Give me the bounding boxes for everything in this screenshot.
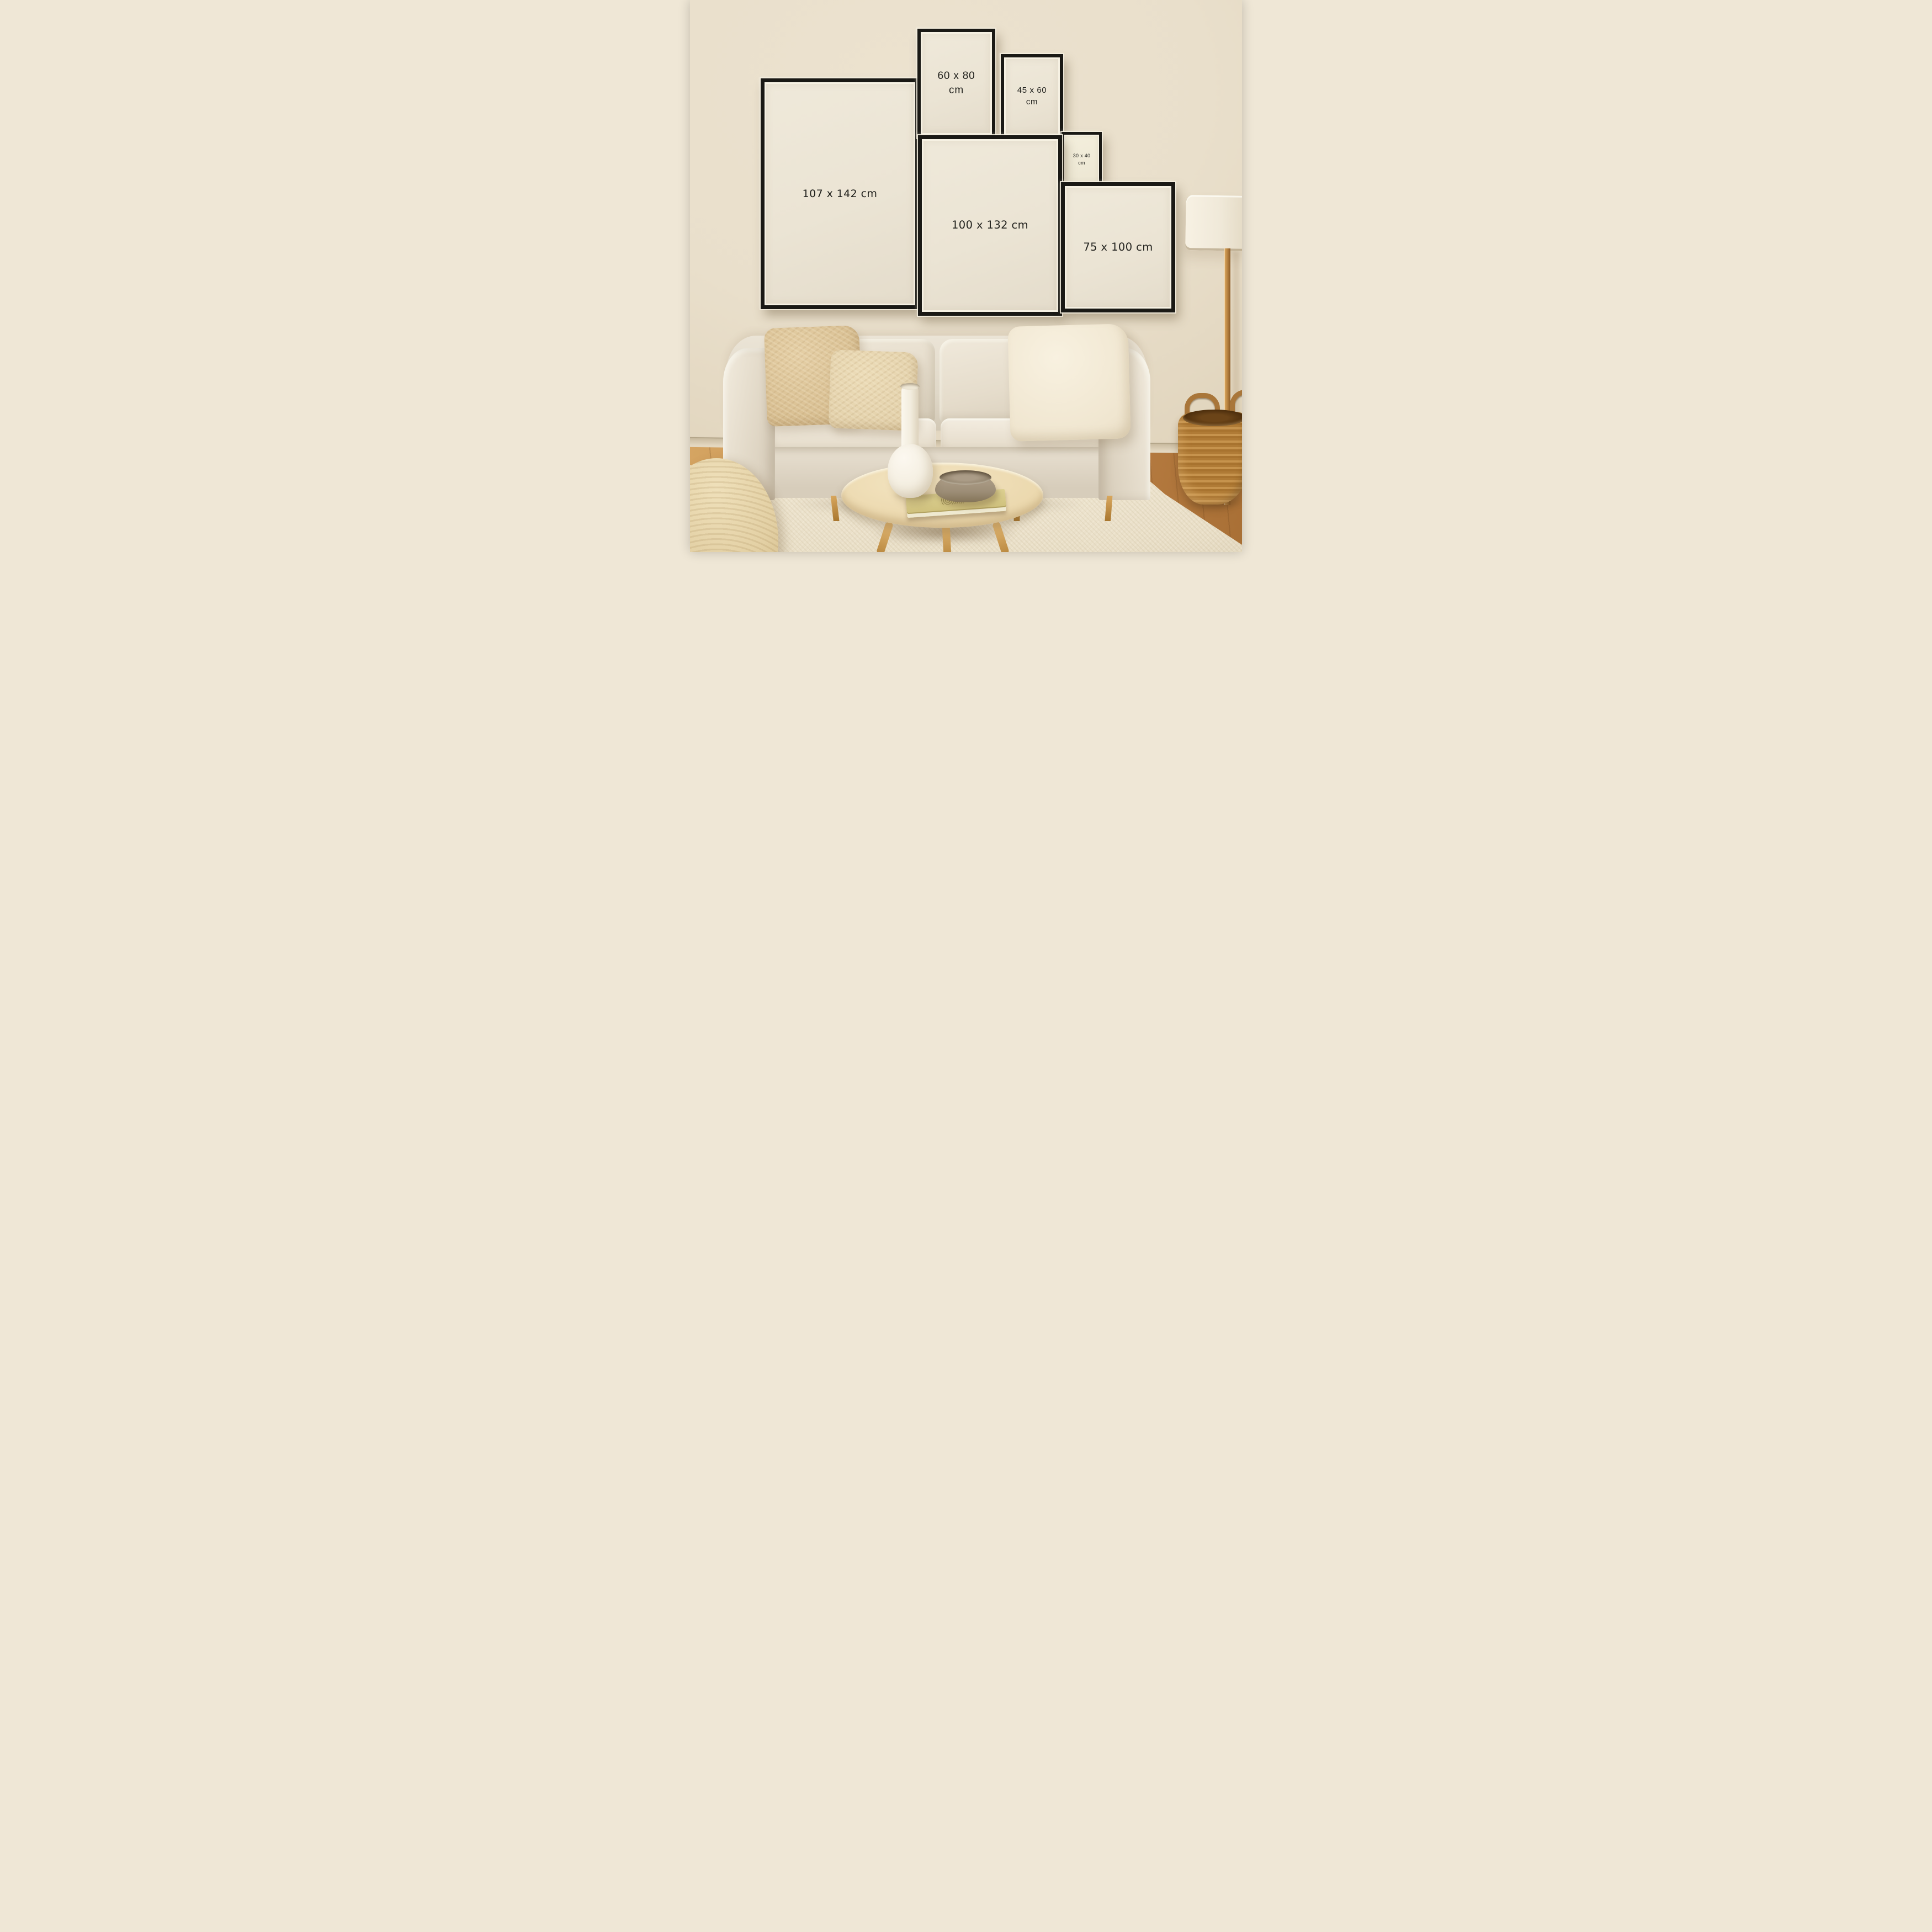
throw-pillow-cream bbox=[1007, 323, 1130, 442]
frame-size-label: 107 x 142 cm bbox=[803, 187, 878, 201]
frame-paper: 45 x 60cm bbox=[1004, 57, 1060, 135]
vase-lip bbox=[900, 383, 920, 390]
frame-size-label: 30 x 40cm bbox=[1073, 152, 1091, 166]
frame-paper: 75 x 100 cm bbox=[1065, 186, 1171, 309]
frame-60x80: 60 x 80cm bbox=[917, 29, 995, 138]
frame-paper: 107 x 142 cm bbox=[765, 82, 915, 305]
frame-paper: 30 x 40cm bbox=[1064, 135, 1099, 184]
lamp-shade bbox=[1185, 195, 1242, 251]
living-room-scene: 107 x 142 cm 60 x 80cm 45 x 60cm 30 x 40… bbox=[690, 0, 1242, 552]
frame-paper: 100 x 132 cm bbox=[922, 139, 1058, 312]
ceramic-vase bbox=[888, 444, 933, 498]
frame-45x60: 45 x 60cm bbox=[1001, 54, 1063, 139]
frame-size-label: 45 x 60cm bbox=[1017, 85, 1047, 108]
frame-paper: 60 x 80cm bbox=[921, 32, 992, 135]
bowl-opening bbox=[940, 470, 991, 485]
frame-100x132: 100 x 132 cm bbox=[918, 135, 1062, 316]
frame-30x40: 30 x 40cm bbox=[1061, 132, 1102, 187]
frame-size-label: 60 x 80cm bbox=[938, 69, 975, 98]
frame-size-label: 100 x 132 cm bbox=[952, 218, 1028, 233]
basket-opening bbox=[1183, 410, 1242, 426]
frame-107x142: 107 x 142 cm bbox=[761, 78, 919, 309]
frame-75x100: 75 x 100 cm bbox=[1061, 182, 1175, 312]
frame-size-label: 75 x 100 cm bbox=[1083, 240, 1153, 255]
